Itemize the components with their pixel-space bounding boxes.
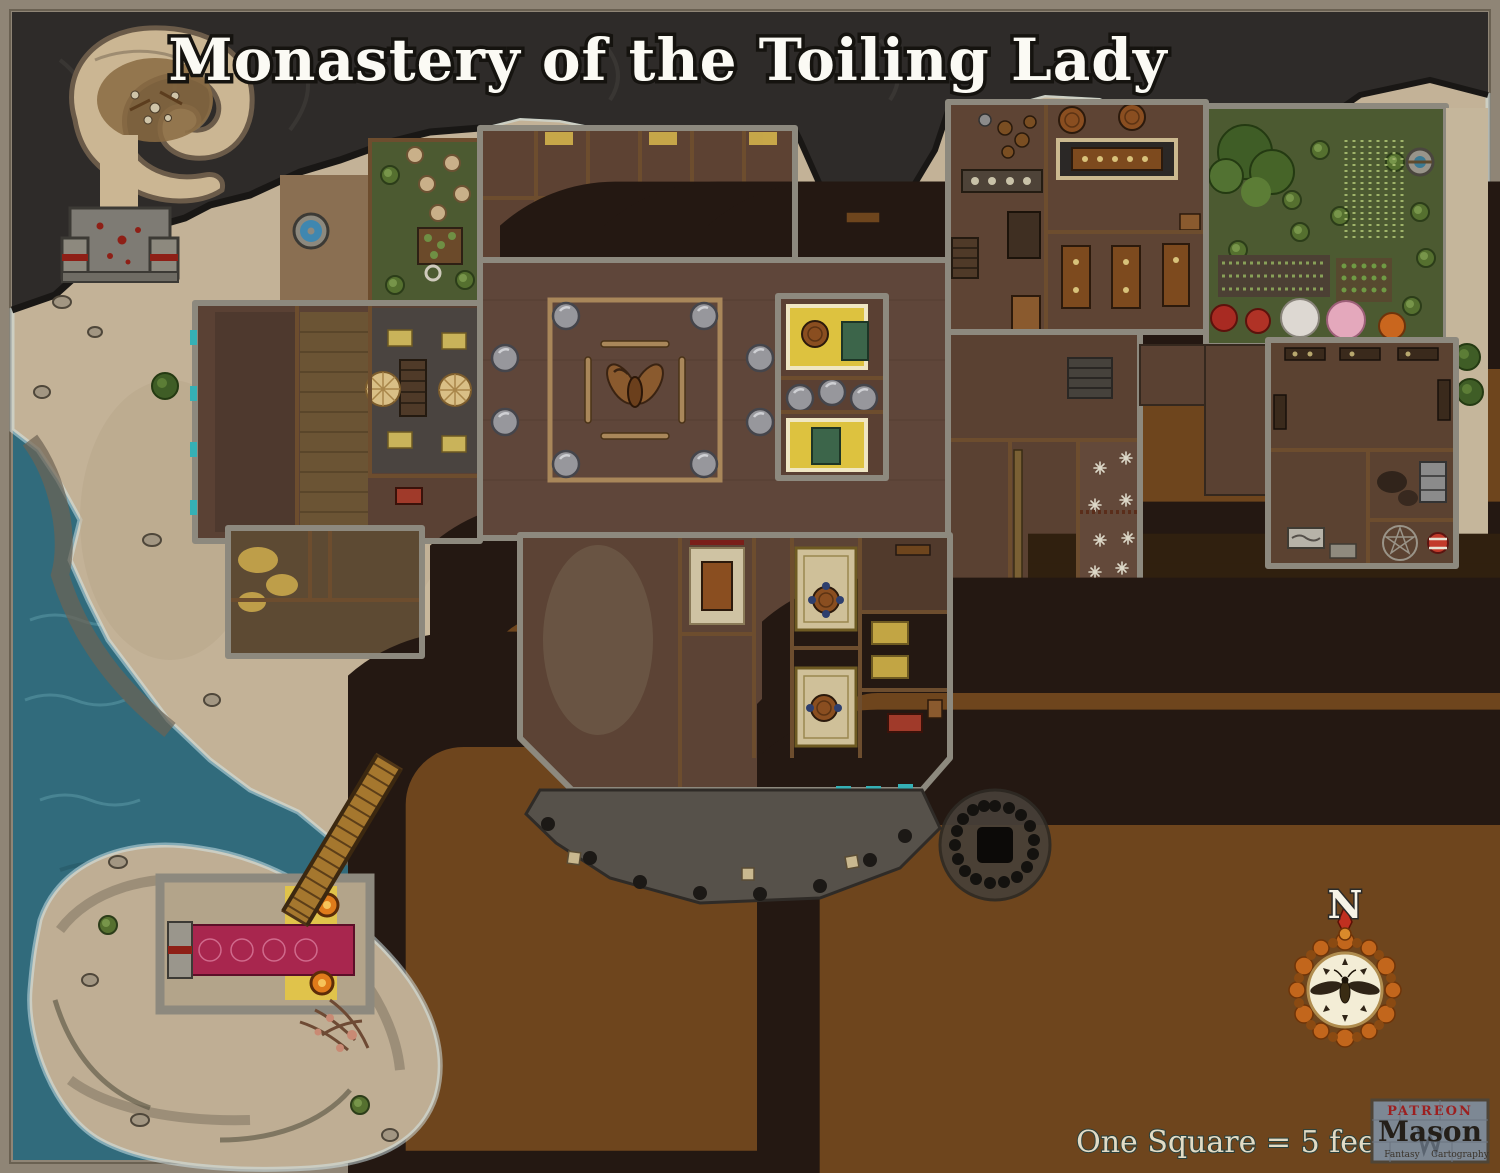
green-mat-2 (812, 428, 840, 464)
red-bed (888, 714, 922, 732)
island-shrine (160, 878, 370, 1010)
kitchen-dining-block (948, 102, 1206, 332)
reed-mat-hall (300, 312, 368, 532)
fountain-courtyard (280, 175, 370, 310)
guest-cells (757, 635, 1500, 1173)
crimson-carpet (176, 925, 354, 975)
striped-barrel (1428, 533, 1448, 553)
gate-platform (62, 208, 178, 282)
statue-alcove (787, 379, 877, 411)
brazier (311, 972, 333, 994)
shelf (1014, 450, 1022, 600)
abbess-chambers (778, 296, 886, 478)
stone-pit (940, 790, 1050, 900)
meeting-room (682, 540, 752, 632)
fountain (294, 214, 328, 248)
logo-sub-left: Fantasy (1384, 1150, 1420, 1160)
garden-well (1407, 149, 1433, 175)
straw-fan (439, 374, 471, 406)
prep-table (1012, 296, 1040, 332)
rug-room-south (796, 668, 856, 746)
monastery-map-screenshot: N Monastery of the Toiling Lady One Squa… (0, 0, 1500, 1173)
pit-opening (977, 827, 1013, 863)
green-mat (842, 322, 868, 360)
metal-cabinet (1420, 462, 1446, 502)
courtyard-garden (370, 140, 480, 310)
scale-label: One Square = 5 feet (1076, 1125, 1388, 1160)
logo-sub-right: Cartography (1431, 1150, 1490, 1160)
creator-logo: PATREON Mason Fantasy Cartography (1372, 1100, 1490, 1162)
red-bed (396, 488, 422, 504)
path-to-gate (100, 135, 138, 215)
cupboard (1008, 212, 1040, 258)
rug-room-north (796, 548, 856, 630)
bench (846, 212, 880, 223)
compass-north-label: N (1328, 882, 1363, 927)
worn-floor (543, 545, 653, 735)
walled-garden (1206, 106, 1446, 346)
monastery-map: N Monastery of the Toiling Lady One Squa… (0, 0, 1500, 1173)
west-hall (215, 312, 295, 532)
stairs (400, 360, 426, 416)
council-table (702, 562, 732, 610)
map-title: Monastery of the Toiling Lady (168, 26, 1168, 94)
logo-mason-label: Mason (1378, 1115, 1482, 1148)
